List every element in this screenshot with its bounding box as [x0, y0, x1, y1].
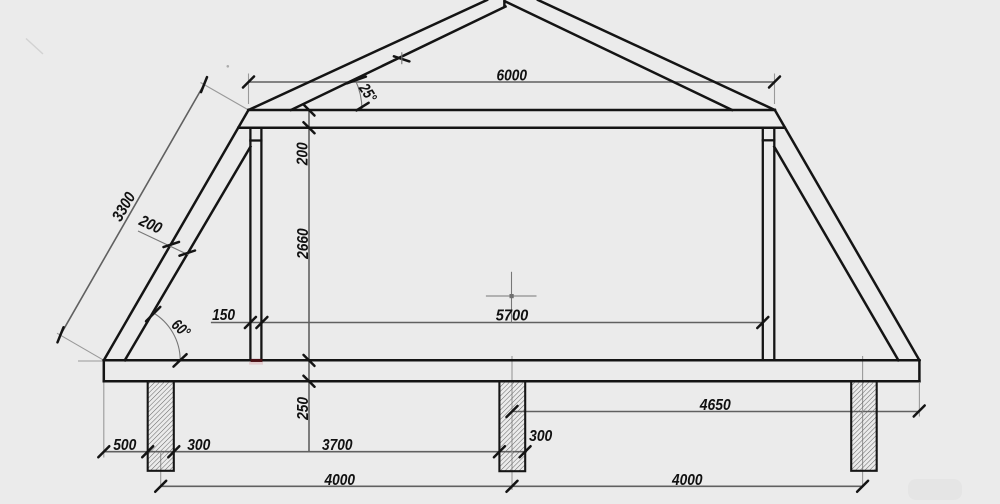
svg-text:2660: 2660 — [295, 228, 312, 259]
svg-text:5700: 5700 — [496, 308, 529, 325]
svg-text:4000: 4000 — [671, 472, 702, 489]
svg-text:300: 300 — [187, 437, 210, 454]
svg-text:200: 200 — [295, 142, 312, 166]
svg-text:250: 250 — [295, 397, 312, 421]
svg-text:4650: 4650 — [699, 397, 731, 414]
svg-text:300: 300 — [529, 428, 552, 445]
svg-text:150: 150 — [212, 307, 235, 324]
svg-text:6000: 6000 — [497, 68, 528, 85]
svg-text:3700: 3700 — [322, 437, 353, 454]
svg-text:4000: 4000 — [324, 472, 355, 489]
svg-text:500: 500 — [113, 437, 136, 454]
